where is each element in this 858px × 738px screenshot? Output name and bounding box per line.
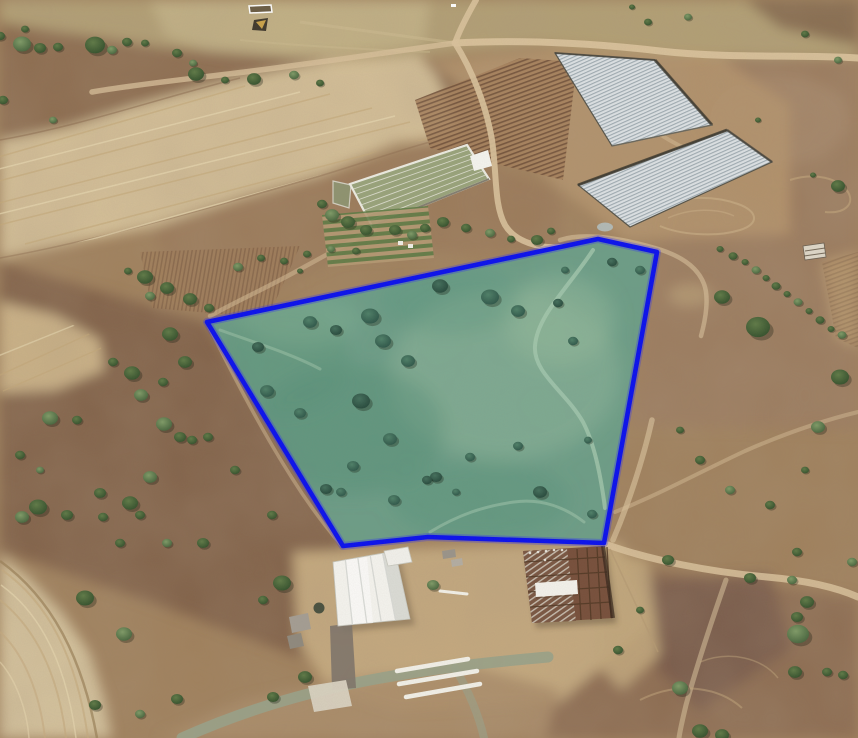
- tree: [806, 308, 813, 314]
- tree: [143, 471, 157, 483]
- road-gray-road: [182, 657, 548, 738]
- tree: [203, 433, 213, 441]
- tree: [230, 466, 240, 474]
- tree: [257, 255, 265, 262]
- vehicle-on-road: [451, 4, 456, 7]
- tree: [787, 625, 809, 643]
- west-patch-streaks: [0, 318, 106, 391]
- tree: [124, 268, 132, 275]
- west-pale-patch: [0, 302, 104, 393]
- tree: [42, 411, 58, 424]
- crop-rows-northeast: [822, 252, 858, 348]
- white-pipe: [399, 671, 477, 684]
- tree: [0, 32, 5, 40]
- tree: [178, 356, 192, 368]
- tree: [98, 513, 108, 521]
- road-between-greenhouses: [640, 120, 718, 162]
- tree: [507, 236, 515, 243]
- parcel-overlay[interactable]: [207, 239, 657, 546]
- tree: [684, 14, 692, 21]
- water-tank: [314, 603, 325, 614]
- nursery-roof: [350, 145, 489, 226]
- tree: [13, 36, 31, 51]
- tree: [297, 268, 303, 273]
- tree: [183, 293, 197, 305]
- tree: [247, 73, 261, 85]
- tree: [744, 573, 756, 583]
- tree: [21, 26, 29, 33]
- tree: [134, 389, 148, 401]
- tree: [717, 246, 724, 252]
- tree: [352, 248, 360, 255]
- tree: [360, 225, 372, 235]
- plow-streaks: [0, 86, 452, 250]
- tree: [327, 246, 335, 253]
- northeast-shed: [803, 243, 826, 260]
- tree: [172, 49, 182, 57]
- tree: [784, 291, 791, 297]
- tree: [122, 496, 138, 509]
- livestock-corral: [249, 5, 272, 13]
- tree: [742, 259, 749, 265]
- tree: [791, 612, 803, 622]
- tree: [847, 558, 857, 566]
- aerial-imagery-canvas[interactable]: [0, 0, 858, 738]
- tree: [94, 488, 106, 498]
- tree: [729, 252, 738, 260]
- tree: [828, 326, 835, 332]
- tree: [752, 266, 761, 274]
- small-structures: [249, 4, 826, 260]
- steel-grid: [524, 547, 611, 620]
- equipment-bin: [442, 549, 456, 559]
- tree: [695, 456, 705, 464]
- tree: [267, 692, 279, 702]
- farm-driveway: [330, 623, 356, 690]
- scaffolding-section: [523, 549, 576, 623]
- tree: [162, 539, 172, 547]
- nursery-cap: [470, 150, 492, 171]
- greenhouse-upper: [555, 53, 712, 146]
- tree: [407, 231, 417, 239]
- tree: [85, 37, 105, 54]
- pond: [597, 223, 613, 232]
- tree: [792, 548, 802, 556]
- tree: [15, 511, 29, 523]
- tree: [233, 263, 243, 271]
- tree: [831, 369, 849, 384]
- white-pipe: [406, 684, 480, 697]
- tree: [644, 19, 652, 26]
- tree: [76, 590, 94, 605]
- road-northeast-track: [615, 412, 858, 512]
- southeast-scrubland: [515, 555, 858, 738]
- tree: [145, 292, 155, 300]
- gray-shed-small: [287, 633, 304, 649]
- top-scrub-band: [0, 22, 470, 142]
- tree: [108, 358, 118, 366]
- tree: [156, 417, 172, 430]
- tree: [298, 671, 312, 683]
- tree: [137, 270, 153, 283]
- tree: [158, 378, 168, 386]
- tree: [341, 216, 355, 228]
- road-gray-branch: [455, 668, 484, 738]
- tree: [547, 228, 555, 235]
- tree: [124, 366, 140, 379]
- tree: [15, 451, 25, 459]
- tree: [29, 499, 47, 514]
- tree: [53, 43, 63, 51]
- gray-shed: [289, 613, 311, 633]
- tree: [636, 607, 644, 614]
- tree: [0, 96, 8, 104]
- tree: [613, 646, 623, 654]
- tree: [714, 290, 730, 303]
- satellite-map-view[interactable]: [0, 0, 858, 738]
- tree: [160, 282, 174, 294]
- white-pipes: [397, 591, 480, 697]
- east-scrubland: [620, 56, 858, 430]
- tractor-track-swirls: [640, 176, 850, 708]
- tree: [834, 57, 842, 64]
- nursery-ribs: [353, 149, 487, 221]
- tree: [162, 327, 178, 340]
- crop-rows-field: [415, 58, 577, 180]
- tree: [317, 200, 327, 208]
- tree: [822, 668, 832, 676]
- tree: [725, 486, 735, 494]
- tree: [89, 700, 101, 710]
- top-field: [0, 0, 858, 64]
- terrace-arcs: [0, 561, 97, 738]
- road-top-stub: [455, 0, 476, 43]
- plowed-field-band: [0, 56, 460, 258]
- parcel-fill[interactable]: [207, 239, 657, 546]
- tree: [135, 710, 145, 718]
- tree: [289, 71, 299, 79]
- tree: [197, 538, 209, 548]
- road-farm-branch-south: [679, 580, 726, 738]
- tree: [772, 282, 781, 290]
- road-farm-east: [608, 545, 858, 597]
- tree: [755, 117, 761, 122]
- southwest-pale-field: [0, 556, 112, 738]
- road-down-to-parcel: [455, 43, 562, 247]
- tree: [629, 4, 635, 9]
- greenhouse-blocks: [555, 53, 772, 227]
- tree: [787, 576, 797, 584]
- greenhouse-lower: [578, 130, 772, 227]
- white-pipe: [397, 659, 468, 671]
- tree: [816, 316, 825, 324]
- tree: [204, 304, 214, 312]
- tree: [662, 555, 674, 565]
- nursery-greenhouse: [322, 145, 492, 267]
- farm-yard: [293, 542, 655, 712]
- tree: [461, 224, 471, 232]
- sand-pit: [150, 0, 430, 58]
- tree: [107, 46, 117, 54]
- tree: [189, 60, 197, 67]
- tree: [838, 331, 847, 339]
- tree: [187, 436, 197, 444]
- tree: [72, 416, 82, 424]
- tree: [676, 427, 684, 434]
- tree: [325, 209, 339, 221]
- tree: [135, 511, 145, 519]
- tree: [831, 180, 845, 192]
- tree: [36, 467, 44, 474]
- tree: [116, 627, 132, 640]
- tree: [801, 31, 809, 38]
- tree: [303, 251, 311, 258]
- tree: [221, 77, 229, 84]
- nursery-annex: [333, 181, 351, 208]
- tree: [49, 117, 57, 124]
- warehouse-building: [333, 551, 410, 626]
- tree: [715, 729, 729, 738]
- tree: [838, 671, 848, 679]
- tree: [427, 580, 439, 590]
- tree: [34, 43, 46, 53]
- tree: [258, 596, 268, 604]
- tree: [485, 229, 495, 237]
- tree: [765, 501, 775, 509]
- tree: [800, 596, 814, 608]
- tree: [267, 511, 277, 519]
- tree: [810, 172, 816, 177]
- farmstead: [287, 546, 658, 712]
- tree: [794, 298, 803, 306]
- tree: [273, 575, 291, 590]
- tree: [746, 317, 770, 337]
- road-top-west: [92, 43, 455, 92]
- tree: [171, 694, 183, 704]
- road-top-east: [455, 42, 858, 58]
- tree: [437, 217, 449, 227]
- white-pipe: [440, 591, 467, 594]
- scaffold-dots: [529, 549, 564, 562]
- warehouse-annex: [384, 547, 412, 566]
- equipment-bin-2: [451, 558, 463, 567]
- tree: [115, 539, 125, 547]
- tree: [280, 258, 288, 265]
- tree: [61, 510, 73, 520]
- tree: [188, 67, 204, 80]
- steel-beam: [535, 580, 578, 597]
- tree: [389, 225, 401, 235]
- tree: [672, 681, 688, 694]
- tree: [763, 275, 770, 281]
- tree: [122, 38, 132, 46]
- tree: [316, 80, 324, 87]
- tree: [531, 235, 543, 245]
- tree: [174, 432, 186, 442]
- concrete-pad: [308, 680, 352, 712]
- tree: [801, 467, 809, 474]
- greenhouse-yard-dirt: [430, 48, 790, 240]
- steel-frame-structure: [523, 546, 613, 623]
- tree: [141, 40, 149, 47]
- gravel-pile: [256, 20, 266, 29]
- tree: [788, 666, 802, 678]
- tree: [692, 724, 708, 737]
- material-mound: [252, 18, 268, 31]
- garden-rows: [322, 206, 434, 267]
- tree: [811, 421, 825, 433]
- tree: [420, 224, 430, 232]
